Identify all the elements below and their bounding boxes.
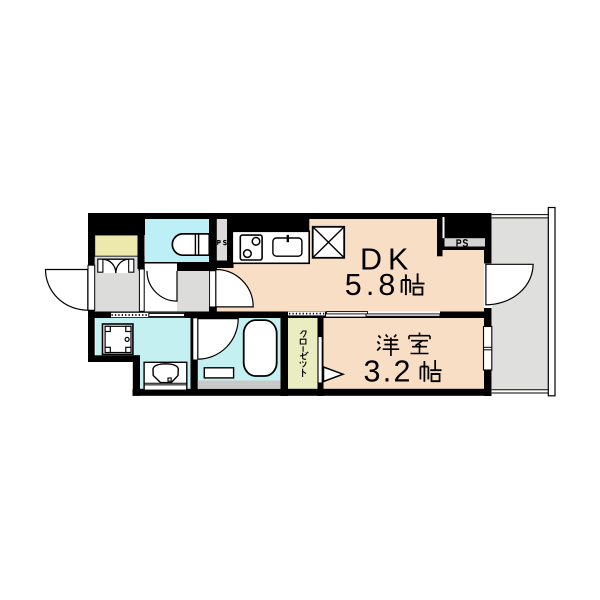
svg-text:5.8: 5.8 bbox=[345, 268, 400, 302]
svg-text:3.2: 3.2 bbox=[364, 355, 413, 389]
